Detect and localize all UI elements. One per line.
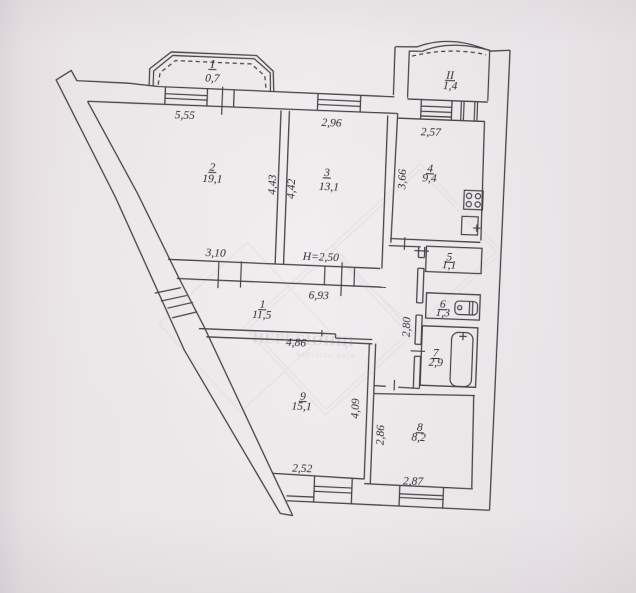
svg-text:2,9: 2,9 <box>428 357 443 370</box>
svg-text:13,1: 13,1 <box>319 181 340 194</box>
svg-text:4,42: 4,42 <box>285 178 298 199</box>
svg-text:4,43: 4,43 <box>267 174 280 195</box>
svg-text:2,96: 2,96 <box>321 117 342 130</box>
svg-text:11,5: 11,5 <box>252 309 272 322</box>
svg-text:3,66: 3,66 <box>396 169 409 191</box>
svg-text:19,1: 19,1 <box>202 173 223 186</box>
svg-text:3,10: 3,10 <box>204 247 226 260</box>
svg-text:4,86: 4,86 <box>286 337 307 350</box>
svg-text:2,80: 2,80 <box>401 317 414 338</box>
svg-text:1,1: 1,1 <box>442 259 457 272</box>
svg-text:1,3: 1,3 <box>435 307 450 320</box>
svg-text:H=2,50: H=2,50 <box>302 251 340 264</box>
svg-text:2,57: 2,57 <box>421 126 443 139</box>
svg-text:4,09: 4,09 <box>350 398 363 419</box>
svg-text:5,55: 5,55 <box>174 109 195 122</box>
svg-text:вартість київ: вартість київ <box>296 348 356 360</box>
svg-text:15,1: 15,1 <box>291 401 312 414</box>
svg-text:2,52: 2,52 <box>292 462 313 475</box>
svg-text:0,7: 0,7 <box>205 72 221 85</box>
svg-text:6,93: 6,93 <box>308 290 329 303</box>
svg-text:1,4: 1,4 <box>443 80 458 93</box>
svg-text:8,2: 8,2 <box>411 432 426 445</box>
svg-text:2,86: 2,86 <box>375 425 388 446</box>
svg-text:2,87: 2,87 <box>403 475 425 488</box>
svg-text:9,4: 9,4 <box>422 172 437 185</box>
